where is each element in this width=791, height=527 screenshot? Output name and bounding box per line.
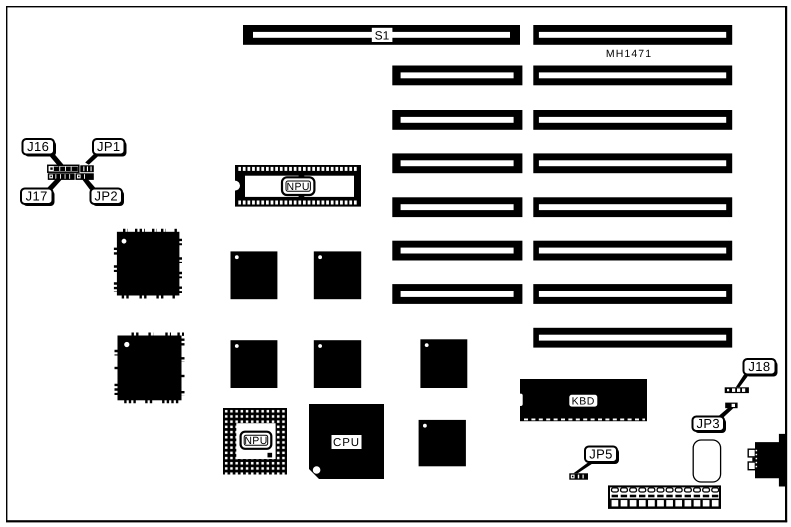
- svg-text:JP1: JP1: [97, 139, 121, 154]
- svg-text:MH1471: MH1471: [606, 48, 652, 60]
- svg-text:J17: J17: [26, 188, 48, 203]
- svg-text:JP3: JP3: [696, 416, 720, 431]
- svg-text:NPU: NPU: [287, 181, 310, 193]
- svg-text:JP5: JP5: [589, 446, 613, 461]
- svg-text:J16: J16: [27, 139, 49, 154]
- svg-text:NPU: NPU: [244, 435, 267, 447]
- svg-text:S1: S1: [375, 29, 390, 43]
- svg-text:CPU: CPU: [333, 437, 360, 449]
- svg-text:KBD: KBD: [572, 395, 595, 407]
- svg-text:J18: J18: [748, 359, 770, 374]
- svg-text:JP2: JP2: [94, 188, 118, 203]
